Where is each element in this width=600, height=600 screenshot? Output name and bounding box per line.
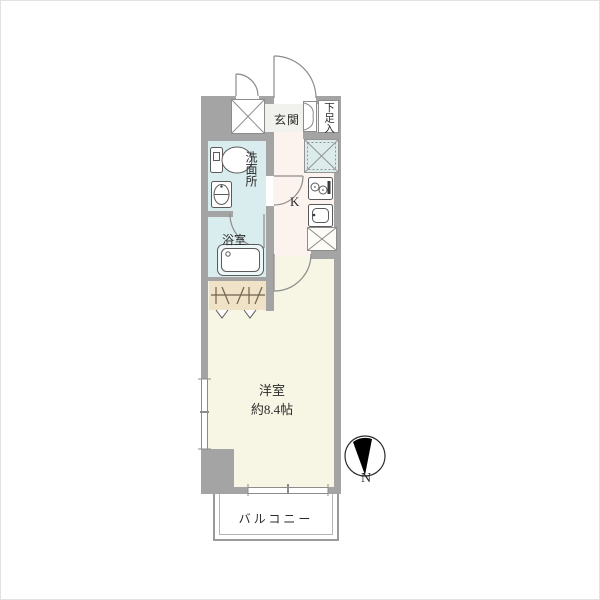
entrance-label: 玄関: [266, 111, 308, 128]
balcony-label: バルコニー: [213, 510, 339, 527]
laundry-space-box: [305, 140, 339, 173]
closet-hook-icons: [216, 310, 256, 318]
small-door-arc-icon: [236, 74, 258, 96]
western-room-label: 洋室 約8.4帖: [222, 381, 322, 419]
compass-icon: [345, 436, 385, 476]
entrance-door-arc-icon: [274, 56, 316, 98]
bathroom-label: 浴室: [220, 231, 248, 248]
western-room-name: 洋室: [222, 381, 322, 400]
pipe-space-box: [232, 100, 265, 134]
washroom-label: 洗面所: [243, 151, 258, 209]
shoe-storage-label: 下足入: [321, 102, 335, 132]
stove-icon: [309, 178, 333, 200]
north-label: N: [355, 471, 377, 487]
kitchen-label: K: [290, 194, 299, 210]
floor-plan: 玄関 下足入 洗面所 浴室 K 洋室 約8.4帖 バルコニー N: [0, 0, 600, 600]
bathtub-icon: [218, 245, 264, 276]
fridge-space-box: [308, 228, 337, 251]
western-room-size: 約8.4帖: [222, 400, 322, 419]
kitchen-sink-icon: [309, 205, 333, 227]
washbasin-icon: [212, 182, 232, 208]
room-door-arc-icon: [274, 254, 311, 291]
closet-hanger-icon: [211, 287, 265, 304]
